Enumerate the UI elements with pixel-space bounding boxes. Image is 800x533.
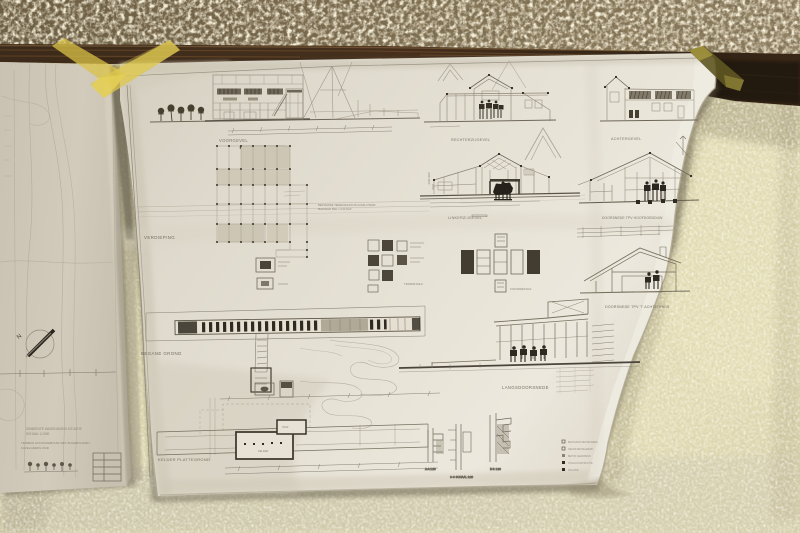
svg-text:VERDIEPING: VERDIEPING [144, 235, 175, 240]
svg-text:VOORGEVEL: VOORGEVEL [219, 138, 248, 143]
svg-text:BETON GEWAPEND: BETON GEWAPEND [568, 455, 591, 458]
svg-text:1800: 1800 [431, 184, 435, 190]
svg-text:DOORSNEDE TPV 'T ACHTERHUIS: DOORSNEDE TPV 'T ACHTERHUIS [605, 305, 670, 309]
svg-text:STAALCONSTRUCTIE: STAALCONSTRUCTIE [568, 462, 593, 465]
svg-text:GEMEENTE WAGENINGEN SITUATIE: GEMEENTE WAGENINGEN SITUATIE [26, 427, 82, 431]
svg-text:TRAP: TRAP [282, 426, 289, 429]
svg-text:BESTAANDE TERREINHOOGTE AANSLU: BESTAANDE TERREINHOOGTE AANSLUITEND [318, 203, 376, 207]
svg-text:SCHAAL 1:1000: SCHAAL 1:1000 [26, 432, 49, 436]
svg-text:LANGSDOORSNEDE: LANGSDOORSNEDE [502, 385, 549, 390]
svg-text:RECHTERZIJGEVEL: RECHTERZIJGEVEL [451, 138, 490, 142]
svg-text:C-C SCHAAL 1:20: C-C SCHAAL 1:20 [450, 475, 474, 479]
svg-text:ACHTERGEVEL: ACHTERGEVEL [611, 137, 641, 141]
svg-text:2400 3600: 2400 3600 [427, 172, 431, 185]
svg-text:KAVELGRENS ZUID: KAVELGRENS ZUID [21, 446, 50, 450]
svg-text:TERREIN HOOFDGEBOUW MET BIJGEB: TERREIN HOOFDGEBOUW MET BIJGEBOUWEN [21, 441, 90, 445]
svg-text:KELDER PLATTEGROND: KELDER PLATTEGROND [158, 457, 210, 462]
svg-text:A-A 1:20: A-A 1:20 [425, 467, 436, 471]
svg-text:TRAPDETAILS: TRAPDETAILS [404, 282, 423, 286]
svg-text:NIEUW METSELWERK: NIEUW METSELWERK [568, 448, 594, 451]
svg-text:KOZIJNDETAILS: KOZIJNDETAILS [510, 287, 532, 291]
svg-text:MAAIVELD PEIL = 0.00 NAP: MAAIVELD PEIL = 0.00 NAP [318, 207, 352, 211]
svg-text:BEGANE GROND: BEGANE GROND [141, 351, 182, 356]
svg-text:DOORSNEDE TPV HOOFDGEBOUW: DOORSNEDE TPV HOOFDGEBOUW [602, 216, 663, 220]
svg-text:BESTAAND METSELWERK: BESTAAND METSELWERK [568, 441, 598, 444]
svg-text:KELDER: KELDER [258, 449, 269, 453]
svg-text:ISOLATIE: ISOLATIE [568, 469, 579, 472]
svg-text:B-B 1:20: B-B 1:20 [490, 467, 501, 471]
